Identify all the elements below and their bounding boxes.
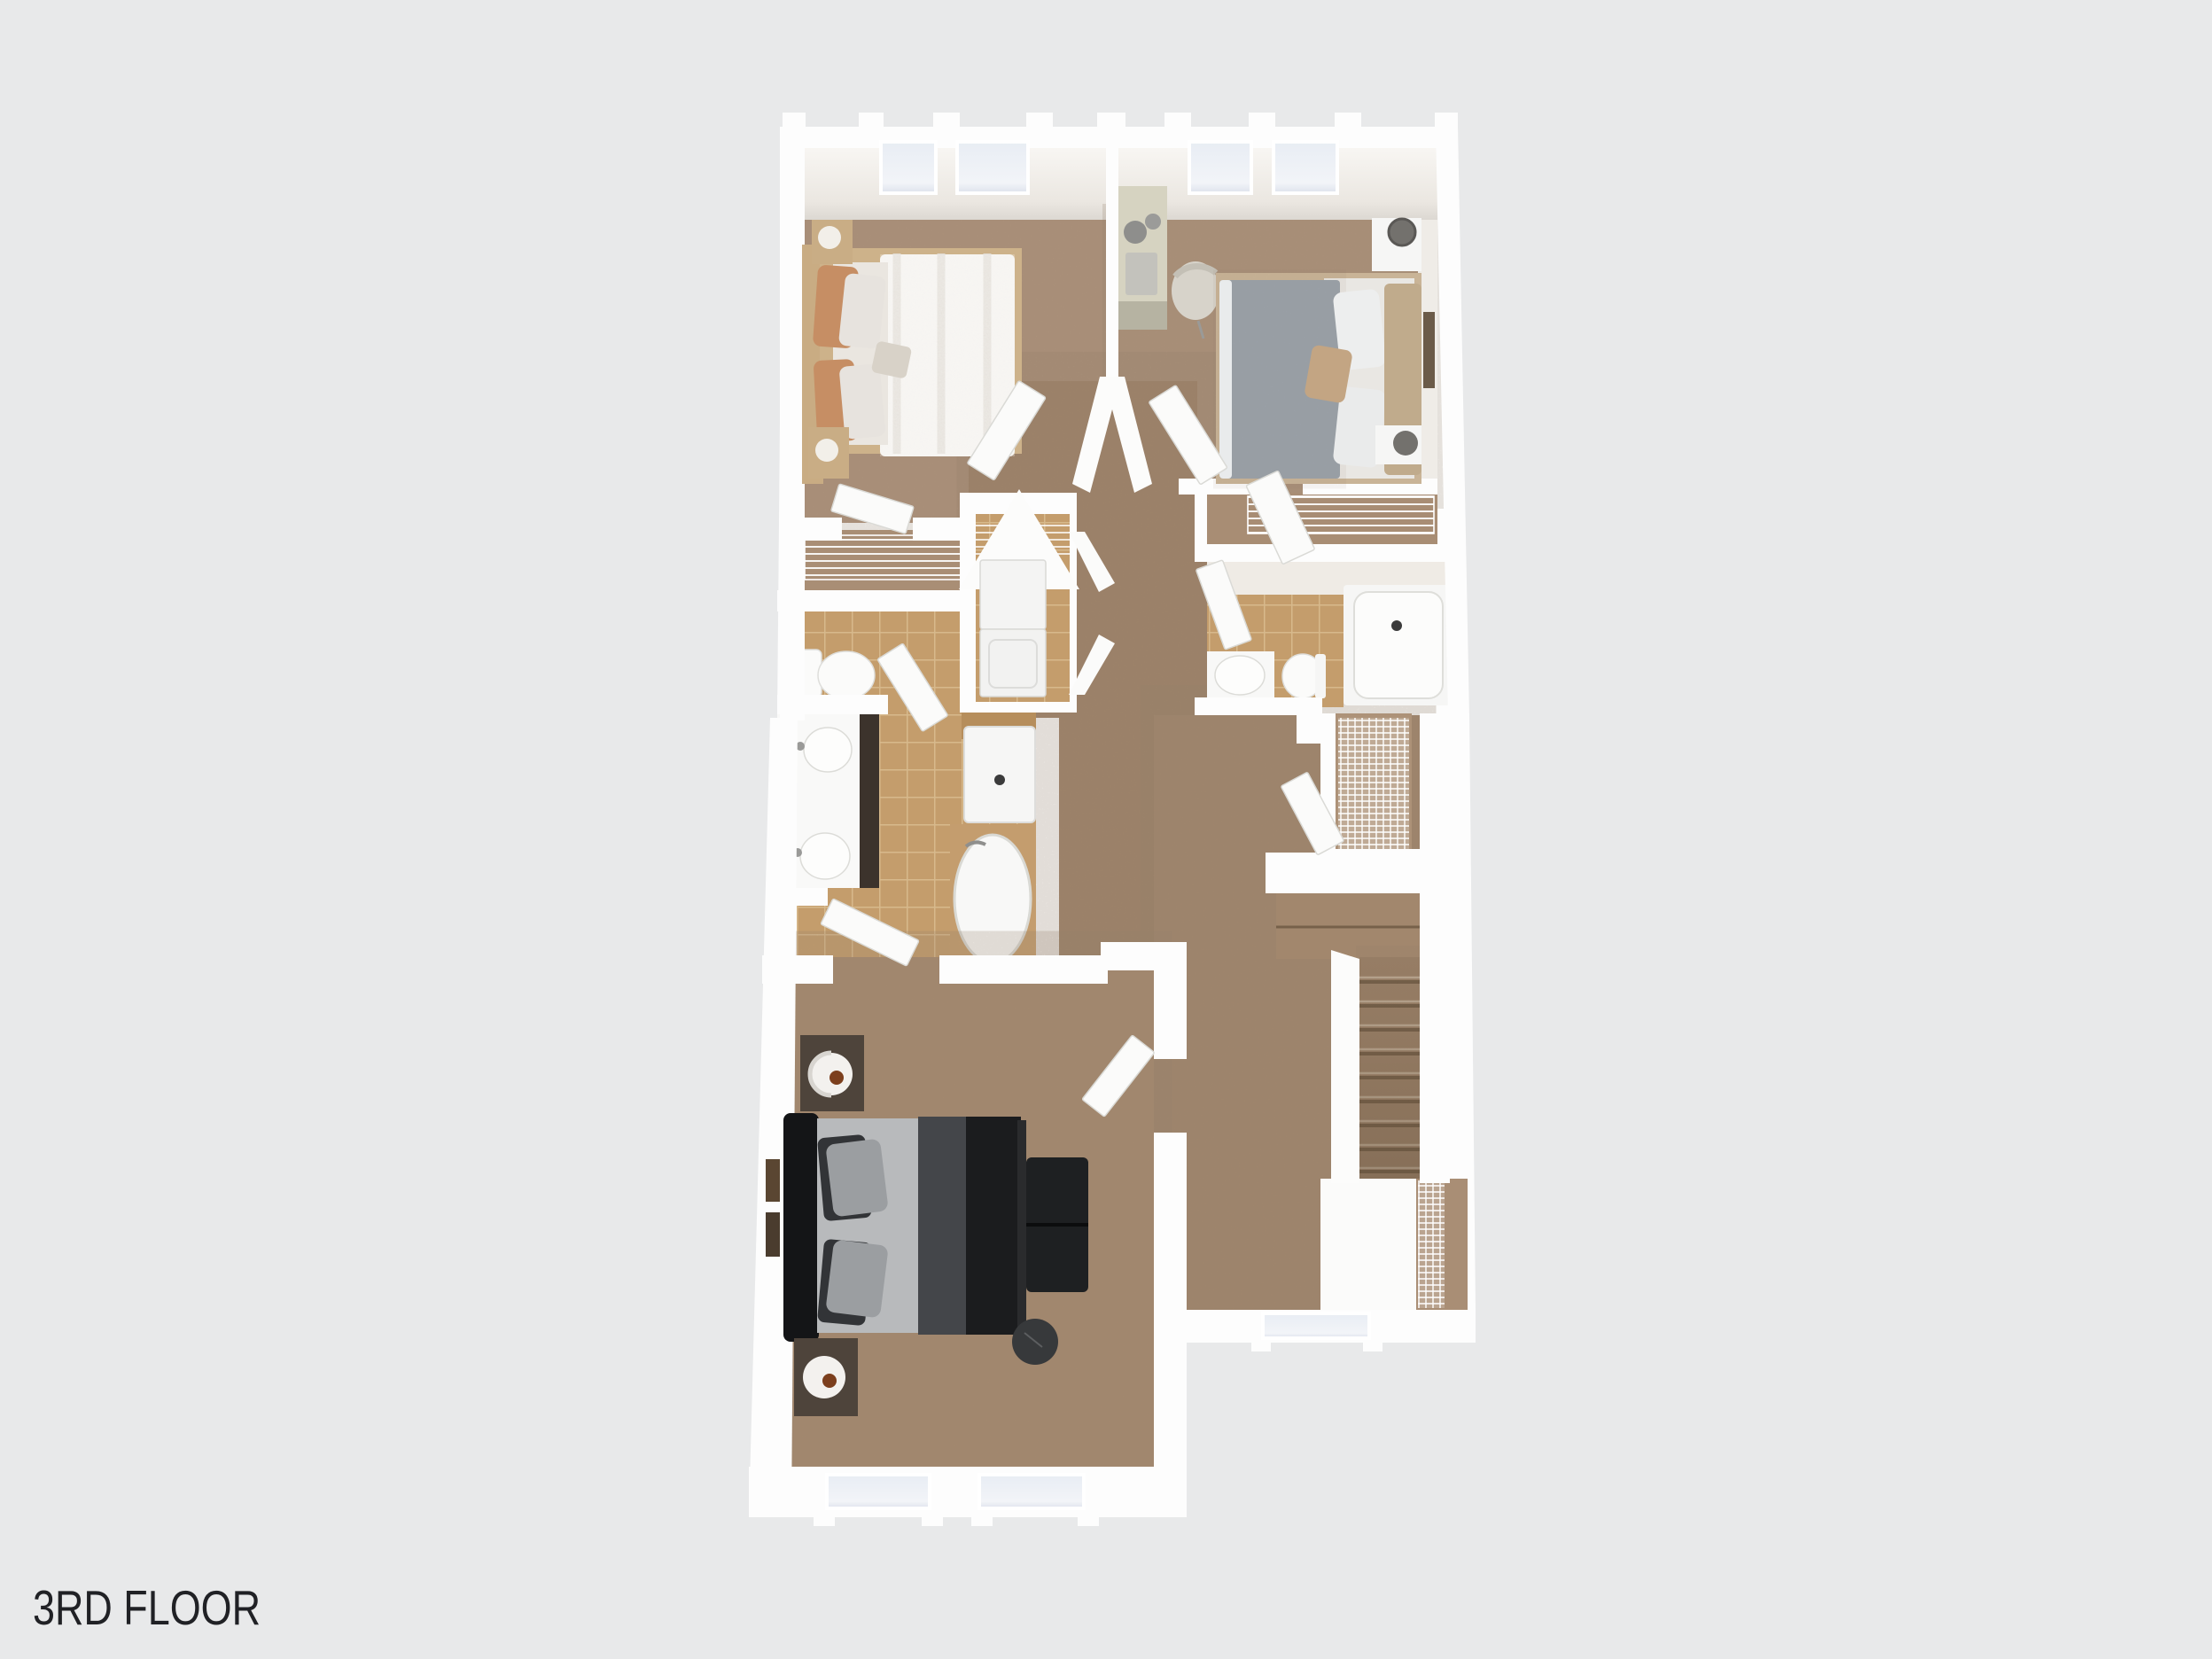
svg-text:3RD FLOOR: 3RD FLOOR	[33, 1580, 261, 1635]
